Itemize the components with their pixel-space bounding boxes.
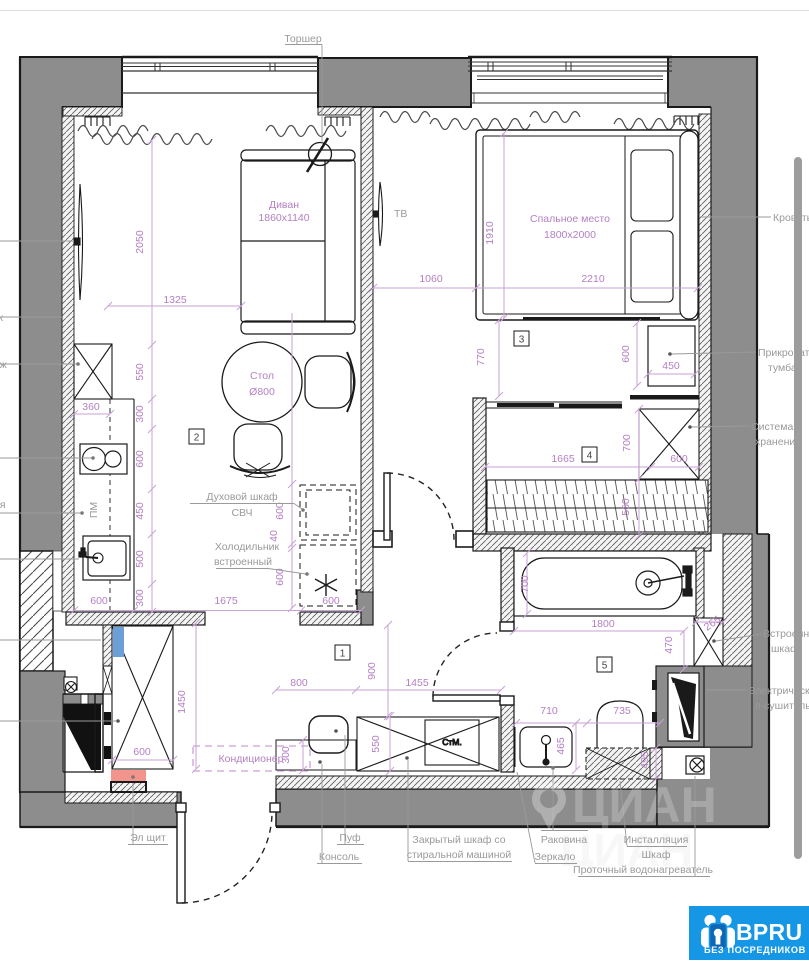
svg-text:800: 800 xyxy=(290,677,308,689)
svg-text:360: 360 xyxy=(82,401,100,413)
svg-text:2: 2 xyxy=(194,433,200,444)
svg-text:710: 710 xyxy=(540,705,558,717)
svg-text:600: 600 xyxy=(134,450,146,468)
svg-text:Закрытый шкаф со: Закрытый шкаф со xyxy=(412,834,505,846)
svg-text:ТВ: ТВ xyxy=(394,208,407,220)
svg-text:470: 470 xyxy=(663,636,675,654)
svg-text:3: 3 xyxy=(519,335,525,346)
svg-text:450: 450 xyxy=(134,502,146,520)
svg-text:встроенный: встроенный xyxy=(214,556,272,568)
svg-text:600: 600 xyxy=(274,502,286,520)
svg-text:СтМ.: СтМ. xyxy=(442,737,461,747)
svg-text:Духовой шкаф: Духовой шкаф xyxy=(206,491,278,503)
svg-text:1665: 1665 xyxy=(551,453,575,465)
svg-text:700: 700 xyxy=(519,575,531,593)
svg-text:СВЧ: СВЧ xyxy=(231,507,252,519)
svg-text:1910: 1910 xyxy=(484,221,496,245)
svg-text:560: 560 xyxy=(620,498,632,516)
svg-text:450: 450 xyxy=(662,360,680,372)
svg-text:ож: ож xyxy=(0,359,7,371)
svg-text:Кровать: Кровать xyxy=(773,212,809,224)
svg-text:500: 500 xyxy=(134,550,146,568)
svg-text:1860х1140: 1860х1140 xyxy=(258,212,309,224)
svg-text:BPRU: BPRU xyxy=(736,919,802,945)
svg-text:770: 770 xyxy=(475,348,487,366)
svg-text:700: 700 xyxy=(621,434,633,452)
svg-text:Встроенный: Встроенный xyxy=(763,628,809,640)
svg-text:1325: 1325 xyxy=(163,294,187,306)
svg-text:Эл щит: Эл щит xyxy=(130,832,166,844)
svg-text:600: 600 xyxy=(322,595,340,607)
svg-text:2050: 2050 xyxy=(134,230,146,254)
svg-text:465: 465 xyxy=(555,737,567,755)
svg-text:600: 600 xyxy=(90,595,108,607)
svg-text:1455: 1455 xyxy=(405,677,429,689)
svg-text:ПМ: ПМ xyxy=(88,502,100,518)
svg-text:ая: ая xyxy=(0,499,6,511)
svg-text:1800: 1800 xyxy=(591,618,615,630)
svg-text:900: 900 xyxy=(366,662,378,680)
svg-text:1675: 1675 xyxy=(214,595,238,607)
svg-text:4: 4 xyxy=(587,451,593,462)
svg-text:Стол: Стол xyxy=(250,370,274,382)
svg-text:735: 735 xyxy=(613,705,631,717)
svg-text:Торшер: Торшер xyxy=(284,33,322,45)
svg-text:Кондиционер: Кондиционер xyxy=(219,753,284,765)
svg-text:300: 300 xyxy=(134,405,146,423)
svg-text:550: 550 xyxy=(370,735,382,753)
svg-text:5: 5 xyxy=(602,661,608,672)
svg-text:1450: 1450 xyxy=(176,690,188,714)
svg-text:ЦИАН: ЦИАН xyxy=(560,824,693,876)
svg-text:Холодильник: Холодильник xyxy=(215,541,280,553)
svg-text:495: 495 xyxy=(639,751,651,769)
svg-text:Диван: Диван xyxy=(269,199,299,211)
svg-text:Пуф: Пуф xyxy=(339,832,361,844)
svg-text:стиральной машиной: стиральной машиной xyxy=(407,849,512,861)
svg-text:600: 600 xyxy=(133,746,151,758)
svg-text:1: 1 xyxy=(340,649,346,660)
svg-text:тумба: тумба xyxy=(768,362,797,374)
svg-text:1800х2000: 1800х2000 xyxy=(544,229,596,241)
svg-text:Консоль: Консоль xyxy=(319,851,360,863)
svg-text:600: 600 xyxy=(670,453,688,465)
svg-text:Система: Система xyxy=(751,421,793,433)
svg-text:300: 300 xyxy=(134,589,146,607)
svg-text:600: 600 xyxy=(620,345,632,363)
svg-text:БЕЗ ПОСРЕДНИКОВ: БЕЗ ПОСРЕДНИКОВ xyxy=(704,945,806,955)
svg-text:Ø800: Ø800 xyxy=(249,386,275,398)
svg-text:1060: 1060 xyxy=(419,273,443,285)
svg-text:300: 300 xyxy=(280,746,292,764)
svg-text:550: 550 xyxy=(134,363,146,381)
svg-text:2210: 2210 xyxy=(581,273,605,285)
svg-text:ж: ж xyxy=(0,312,3,324)
svg-text:Спальное место: Спальное место xyxy=(530,213,610,225)
